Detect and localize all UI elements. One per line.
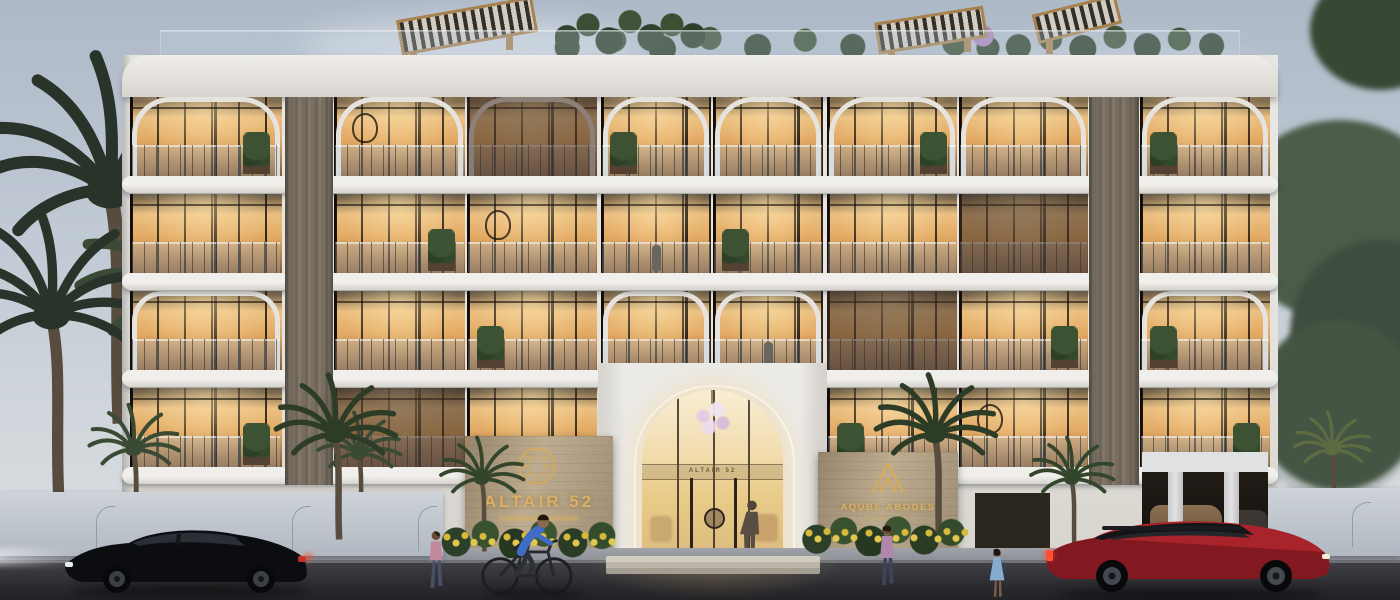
- window-transom: [713, 204, 823, 206]
- glass-balustrade: [960, 145, 1086, 176]
- balcony-bay: [130, 97, 282, 176]
- potted-plant: [920, 132, 947, 174]
- balcony-bay: [1140, 97, 1270, 176]
- window-transom: [467, 107, 597, 109]
- wood-panel: [1089, 97, 1139, 485]
- potted-plant: [428, 229, 455, 271]
- window-transom: [467, 204, 597, 206]
- window-transom: [467, 301, 597, 303]
- glass-balustrade: [960, 242, 1086, 273]
- door-lintel: ALTAIR 52: [642, 464, 783, 480]
- window-transom: [130, 204, 282, 206]
- window-transom: [959, 204, 1088, 206]
- window-transom: [827, 204, 957, 206]
- balcony-bay: [334, 97, 465, 176]
- balcony-bay: [130, 194, 282, 273]
- architectural-render: ALTAIR 52 ALTAIR 52 AQUBE ABODES REALTY: [0, 0, 1400, 600]
- potted-plant: [722, 229, 749, 271]
- glass-balustrade: [335, 145, 463, 176]
- pedestrian-near-sign: [874, 524, 900, 592]
- lobby-furniture: [650, 516, 672, 542]
- garage-header: [1142, 452, 1268, 472]
- window-transom: [827, 301, 957, 303]
- chandelier: [688, 398, 738, 450]
- balcony-bay: [601, 97, 711, 176]
- balcony-bay: [713, 194, 823, 273]
- potted-plant: [243, 132, 270, 174]
- cyclist: [468, 502, 580, 598]
- balcony-bay: [130, 291, 282, 370]
- potted-plant: [1051, 326, 1078, 368]
- window-transom: [1140, 398, 1270, 400]
- glass-balustrade: [1141, 242, 1268, 273]
- pedestrian-left: [424, 530, 448, 594]
- entrance-steps: [606, 556, 820, 574]
- red-suv: [1038, 508, 1338, 600]
- hanging-chair: [485, 210, 511, 240]
- pedestrian-right: [986, 548, 1008, 600]
- glass-balustrade: [132, 339, 281, 370]
- door-sign: ALTAIR 52: [642, 468, 783, 474]
- glass-balustrade: [828, 242, 955, 273]
- balcony-bay: [1140, 194, 1270, 273]
- taillight-glow: [1040, 548, 1058, 562]
- balcony-bay: [959, 194, 1088, 273]
- glass-balustrade: [714, 145, 822, 176]
- balcony-bay: [334, 194, 465, 273]
- balcony-bay: [713, 97, 823, 176]
- glass-balustrade: [468, 145, 595, 176]
- balcony-bay: [601, 194, 711, 273]
- balcony-bay: [467, 194, 597, 273]
- window-transom: [467, 398, 597, 400]
- window-transom: [334, 204, 465, 206]
- balcony-bay: [601, 291, 711, 370]
- entrance-mullion: [677, 390, 679, 570]
- window-transom: [334, 301, 465, 303]
- glass-balustrade: [602, 242, 710, 273]
- glass-balustrade: [132, 242, 281, 273]
- balcony-bay: [827, 194, 957, 273]
- window-transom: [601, 204, 711, 206]
- cyclist-shadow: [485, 590, 585, 598]
- balcony-bay: [1140, 291, 1270, 370]
- balcony-bay: [467, 291, 597, 370]
- potted-plant: [477, 326, 504, 368]
- potted-plant: [1150, 132, 1177, 174]
- wall-seam: [1352, 502, 1371, 547]
- potted-plant: [1150, 326, 1177, 368]
- balcony-bay: [713, 291, 823, 370]
- potted-plant: [610, 132, 637, 174]
- balcony-bay: [827, 97, 957, 176]
- door-handle-icon: [704, 508, 725, 529]
- entrance-arch: ALTAIR 52: [642, 390, 783, 570]
- balcony-bay: [467, 97, 597, 176]
- black-suv: [55, 516, 315, 596]
- chandelier-stem: [711, 390, 713, 404]
- balcony-arch: [469, 97, 595, 176]
- balcony-bay: [959, 97, 1088, 176]
- window-transom: [1140, 204, 1270, 206]
- window-transom: [959, 301, 1088, 303]
- glass-balustrade: [468, 242, 595, 273]
- taillight-glow: [300, 552, 316, 562]
- hanging-chair: [352, 113, 378, 143]
